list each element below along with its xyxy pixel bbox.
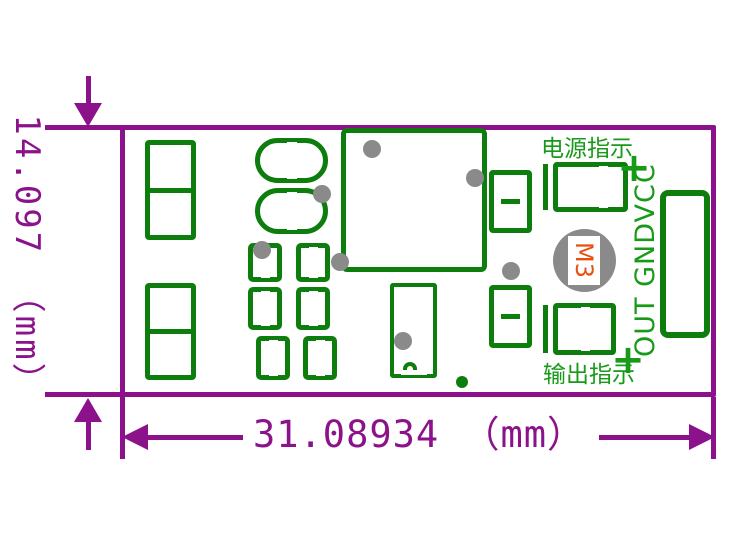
pad-pair-row1-pad2 bbox=[296, 243, 330, 282]
component-with-notch-arc bbox=[403, 362, 417, 370]
via-2 bbox=[466, 169, 484, 187]
pad-pair-row1-notch-bottom bbox=[309, 271, 318, 278]
stadium-pad-top-gap-bottom bbox=[287, 172, 297, 179]
via-7 bbox=[394, 332, 412, 350]
pad-pair-row2-notch-top bbox=[309, 291, 318, 298]
footprint-layer bbox=[0, 0, 729, 548]
pad-left-top bbox=[145, 140, 196, 240]
pad-mid-top bbox=[489, 170, 532, 233]
component-with-notch bbox=[390, 283, 437, 378]
led-output-gap-bottom bbox=[581, 344, 590, 351]
stadium-pad-top-gap-top bbox=[287, 142, 297, 149]
stadium-pad-bottom-gap-bottom bbox=[287, 223, 297, 230]
led-output-polarity-bar bbox=[543, 305, 548, 353]
led-power-gap-top bbox=[599, 166, 608, 173]
pad-pair-row3-pad2 bbox=[303, 336, 337, 380]
via-5 bbox=[331, 253, 349, 271]
pad-pair-row2-notch-bottom bbox=[309, 319, 318, 326]
pad-pair-row2 bbox=[248, 287, 330, 330]
pad-left-bottom-divider bbox=[150, 329, 191, 334]
pad-left-bottom bbox=[145, 283, 196, 380]
pad-pair-row3-notch-top bbox=[269, 340, 278, 347]
via-6 bbox=[502, 262, 520, 280]
pad-pair-row3 bbox=[256, 336, 337, 380]
via-4 bbox=[253, 241, 271, 259]
connector-pad bbox=[660, 190, 710, 338]
pad-pair-row3-notch-bottom bbox=[269, 369, 278, 376]
pad-pair-row1-notch-top bbox=[309, 247, 318, 254]
pad-pair-row3-notch-bottom bbox=[316, 369, 325, 376]
mounting-hole-label: M3 bbox=[571, 236, 597, 284]
pad-left-top-divider bbox=[150, 188, 191, 193]
led-output-pads bbox=[553, 303, 616, 355]
test-point-1 bbox=[456, 376, 468, 388]
led-output-gap-top bbox=[581, 307, 590, 314]
pcb-dimension-drawing: 14.097 （mm） 31.08934 （mm） 电源指示 输出指示 + + … bbox=[0, 0, 729, 548]
pad-mid-top-divider bbox=[501, 199, 521, 204]
pad-mid-bottom bbox=[489, 285, 532, 348]
stadium-pad-bottom-gap-top bbox=[287, 192, 297, 199]
pad-pair-row3-pad1 bbox=[256, 336, 290, 380]
led-power-gap-bottom bbox=[599, 201, 608, 208]
pad-pair-row2-pad2 bbox=[296, 287, 330, 330]
pad-mid-bottom-divider bbox=[501, 314, 521, 319]
via-1 bbox=[363, 140, 381, 158]
pad-pair-row2-notch-top bbox=[261, 291, 270, 298]
pad-pair-row2-pad1 bbox=[248, 287, 282, 330]
led-power-polarity-bar bbox=[543, 164, 548, 210]
connector-pin-labels: OUT GNDVCC bbox=[631, 177, 661, 357]
led-output bbox=[543, 303, 616, 355]
pad-pair-row2-notch-bottom bbox=[261, 319, 270, 326]
pad-pair-row1-notch-bottom bbox=[261, 271, 270, 278]
pad-pair-row3-notch-top bbox=[316, 340, 325, 347]
stadium-pad-top bbox=[255, 138, 328, 183]
via-3 bbox=[313, 185, 331, 203]
